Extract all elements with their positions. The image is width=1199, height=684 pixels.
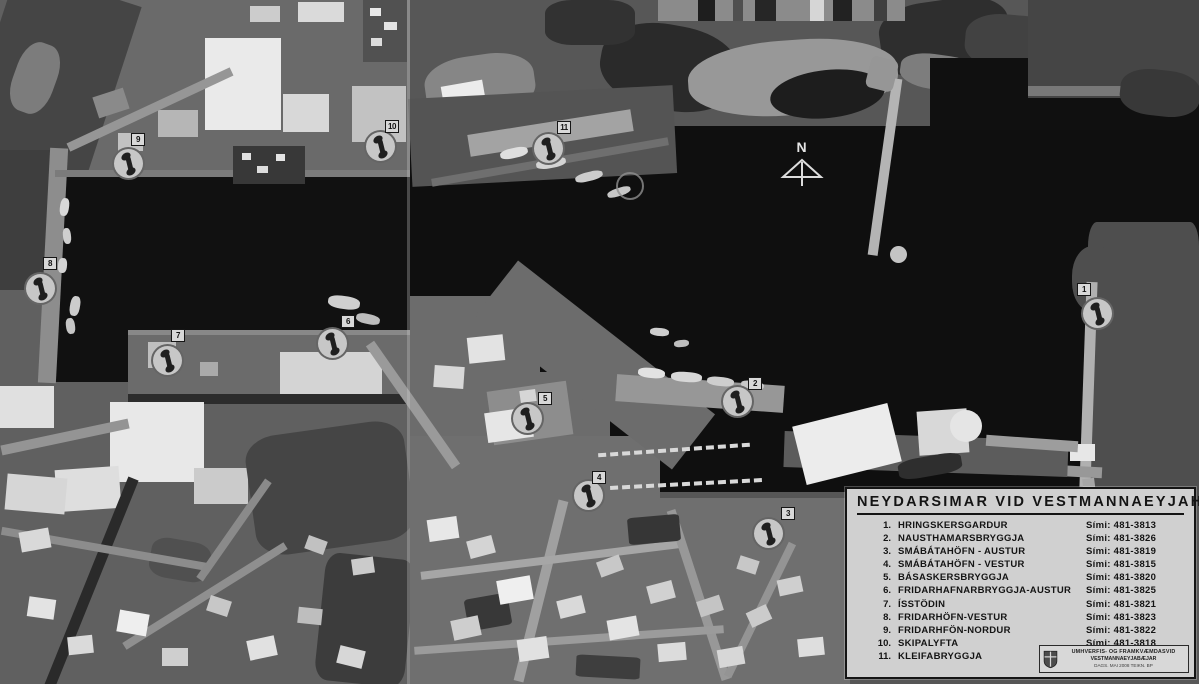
harbor-aerial-map: N 1234567891011 NEYDARSIMAR VID VESTMANN… <box>0 0 1199 684</box>
legend-item-phone: Sími: 481-3821 <box>1086 598 1156 611</box>
marker-number-badge: 8 <box>43 257 57 270</box>
legend-row: 8.FRIDARHÖFN-VESTURSími: 481-3823 <box>873 611 1186 624</box>
location-ring-marker <box>616 172 644 200</box>
legend-item-name: ÍSSTÖDIN <box>898 598 1086 611</box>
phone-handset-icon <box>329 346 341 357</box>
legend-row: 9.FRIDARHFÖN-NORDURSími: 481-3822 <box>873 624 1186 637</box>
stamp-text: UMHVERFIS- OG FRAMKVÆMDASVID VESTMANNAEY… <box>1062 649 1185 669</box>
legend-row: 4.SMÁBÁTAHÖFN - VESTURSími: 481-3815 <box>873 558 1186 571</box>
marker-number-badge: 4 <box>592 471 606 484</box>
legend-title: NEYDARSIMAR VID VESTMANNAEYJAHÖFN <box>857 494 1184 515</box>
phone-marker-3 <box>752 517 785 550</box>
coat-of-arms-shield-icon <box>1043 650 1058 669</box>
legend-row: 6.FRIDARHAFNARBRYGGJA-AUSTURSími: 481-38… <box>873 584 1186 597</box>
phone-handset-icon <box>125 166 137 177</box>
legend-item-phone: Sími: 481-3823 <box>1086 611 1156 624</box>
phone-marker-7 <box>151 344 184 377</box>
legend-item-name: FRIDARHÖFN-VESTUR <box>898 611 1086 624</box>
legend-row: 7.ÍSSTÖDINSími: 481-3821 <box>873 598 1186 611</box>
marker-number-badge: 2 <box>748 377 762 390</box>
legend-row: 3.SMÁBÁTAHÖFN - AUSTURSími: 481-3819 <box>873 545 1186 558</box>
legend-item-name: NAUSTHAMARSBRYGGJA <box>898 532 1086 545</box>
phone-handset-icon <box>585 498 597 509</box>
phone-handset-icon <box>1094 316 1106 327</box>
phone-marker-9 <box>112 147 145 180</box>
legend-item-phone: Sími: 481-3820 <box>1086 571 1156 584</box>
legend-item-phone: Sími: 481-3813 <box>1086 519 1156 532</box>
phone-marker-10 <box>364 130 397 163</box>
phone-marker-6 <box>316 327 349 360</box>
marker-number-badge: 11 <box>557 121 571 134</box>
marker-number-badge: 1 <box>1077 283 1091 296</box>
legend-list: 1.HRINGSKERSGARDURSími: 481-38132.NAUSTH… <box>873 519 1186 663</box>
legend-item-number: 4. <box>873 558 891 571</box>
legend-item-number: 7. <box>873 598 891 611</box>
phone-handset-icon <box>524 421 536 432</box>
legend-item-phone: Sími: 481-3826 <box>1086 532 1156 545</box>
legend-panel: NEYDARSIMAR VID VESTMANNAEYJAHÖFN 1.HRIN… <box>845 487 1196 679</box>
legend-item-number: 2. <box>873 532 891 545</box>
legend-item-phone: Sími: 481-3819 <box>1086 545 1156 558</box>
phone-handset-icon <box>164 363 176 374</box>
legend-item-number: 9. <box>873 624 891 637</box>
phone-marker-8 <box>24 272 57 305</box>
marker-number-badge: 6 <box>341 315 355 328</box>
municipality-stamp: UMHVERFIS- OG FRAMKVÆMDASVID VESTMANNAEY… <box>1039 645 1189 673</box>
legend-item-name: SMÁBÁTAHÖFN - AUSTUR <box>898 545 1086 558</box>
legend-row: 1.HRINGSKERSGARDURSími: 481-3813 <box>873 519 1186 532</box>
legend-row: 5.BÁSASKERSBRYGGJASími: 481-3820 <box>873 571 1186 584</box>
legend-item-number: 3. <box>873 545 891 558</box>
phone-handset-icon <box>37 291 49 302</box>
legend-item-name: BÁSASKERSBRYGGJA <box>898 571 1086 584</box>
phone-marker-5 <box>511 402 544 435</box>
stamp-org-line1: UMHVERFIS- OG FRAMKVÆMDASVID <box>1062 649 1185 656</box>
marker-number-badge: 7 <box>171 329 185 342</box>
legend-item-phone: Sími: 481-3815 <box>1086 558 1156 571</box>
stamp-date-line: DAGS. MAI 2008 TEIKN. BP <box>1062 663 1185 669</box>
marker-number-badge: 5 <box>538 392 552 405</box>
legend-item-name: FRIDARHAFNARBRYGGJA-AUSTUR <box>898 584 1086 597</box>
phone-marker-11 <box>532 132 565 165</box>
legend-item-phone: Sími: 481-3822 <box>1086 624 1156 637</box>
legend-row: 2.NAUSTHAMARSBRYGGJASími: 481-3826 <box>873 532 1186 545</box>
legend-item-number: 1. <box>873 519 891 532</box>
marker-number-badge: 10 <box>385 120 399 133</box>
legend-item-name: FRIDARHFÖN-NORDUR <box>898 624 1086 637</box>
legend-item-name: SMÁBÁTAHÖFN - VESTUR <box>898 558 1086 571</box>
legend-item-number: 8. <box>873 611 891 624</box>
legend-item-number: 10. <box>873 637 891 650</box>
phone-handset-icon <box>734 404 746 415</box>
phone-marker-1 <box>1081 297 1114 330</box>
legend-item-number: 11. <box>873 650 891 663</box>
legend-item-phone: Sími: 481-3825 <box>1086 584 1156 597</box>
legend-item-number: 6. <box>873 584 891 597</box>
phone-handset-icon <box>377 149 389 160</box>
legend-item-number: 5. <box>873 571 891 584</box>
marker-number-badge: 9 <box>131 133 145 146</box>
legend-item-name: HRINGSKERSGARDUR <box>898 519 1086 532</box>
marker-number-badge: 3 <box>781 507 795 520</box>
phone-handset-icon <box>765 536 777 547</box>
phone-handset-icon <box>545 151 557 162</box>
